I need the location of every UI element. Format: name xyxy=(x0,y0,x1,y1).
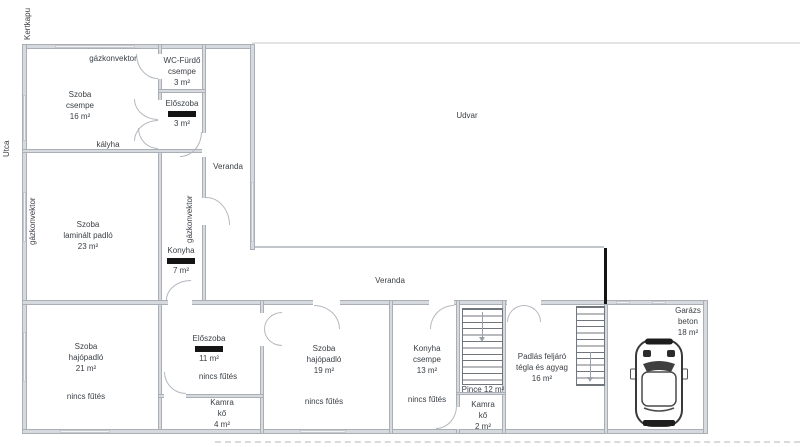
door-arc xyxy=(166,280,191,300)
door-arc xyxy=(134,99,158,120)
room-szoba-21: Szobahajópadló21 m² xyxy=(36,341,136,374)
window xyxy=(23,332,26,382)
window xyxy=(23,95,26,141)
label-kertkapu: Kertkapu xyxy=(22,2,33,46)
room-konyha-felso: Konyha 7 m² xyxy=(155,245,207,276)
redacted-text xyxy=(195,346,223,352)
label-udvar: Udvar xyxy=(444,110,490,121)
room-wc-furdo: WC-Fürdőcsempe3 m² xyxy=(156,55,208,88)
window xyxy=(55,45,135,48)
room-pince: Pince 12 m² xyxy=(454,384,512,395)
window xyxy=(60,430,110,433)
room-szoba-19: Szobahajópadló19 m² xyxy=(274,343,374,376)
window xyxy=(652,301,666,304)
door-arc xyxy=(430,305,454,329)
note-szoba-21: nincs fűtés xyxy=(36,391,136,402)
door-arc xyxy=(206,197,230,225)
window xyxy=(23,192,26,242)
fence-line-top xyxy=(252,42,800,44)
label-gazkonvektor-top: gázkonvektor xyxy=(79,53,147,64)
fence-line-bottom xyxy=(215,441,800,443)
label-veranda-lower: Veranda xyxy=(364,275,416,286)
window xyxy=(616,301,630,304)
room-padlas-feljaro: Padlás feljárótégla és agyag16 m² xyxy=(490,351,594,384)
note-eloszoba-also: nincs fűtés xyxy=(172,371,264,382)
room-szoba-csempe: Szobacsempe16 m² xyxy=(40,89,120,122)
room-eloszoba-felso: Előszoba 3 m² xyxy=(156,98,208,129)
redacted-text xyxy=(167,258,195,264)
floor-plan: Kertkapu Utca Udvar Veranda Veranda gázk… xyxy=(0,0,800,447)
label-veranda-upper: Veranda xyxy=(205,161,251,172)
label-kalyha: kályha xyxy=(80,139,136,150)
note-szoba-19: nincs fűtés xyxy=(274,396,374,407)
room-garazs: Garázsbeton18 m² xyxy=(648,305,728,338)
door-arc xyxy=(524,305,541,322)
room-kamra-2: Kamrakő2 m² xyxy=(443,399,523,432)
door-arc xyxy=(264,312,282,329)
label-gazkonvektor-middle: gázkonvektor xyxy=(184,188,195,250)
door-arc xyxy=(180,132,202,157)
redacted-text xyxy=(168,111,196,117)
veranda-strip-top-line xyxy=(255,246,604,248)
window xyxy=(300,430,346,433)
room-eloszoba-also: Előszoba 11 m² xyxy=(163,333,255,364)
door-arc xyxy=(314,305,340,329)
label-utca: Utca xyxy=(1,132,12,166)
window xyxy=(251,182,254,242)
door-arc xyxy=(138,128,158,149)
room-konyha-also: Konyhacsempe13 m² xyxy=(377,343,477,376)
veranda-strip-right-line xyxy=(604,248,607,304)
wall-wc-divider xyxy=(158,89,206,93)
door-arc xyxy=(507,305,524,322)
room-kamra-4: Kamrakő4 m² xyxy=(182,397,262,430)
room-szoba-laminalt: Szobalaminált padló23 m² xyxy=(36,219,140,252)
car-icon xyxy=(630,336,688,430)
